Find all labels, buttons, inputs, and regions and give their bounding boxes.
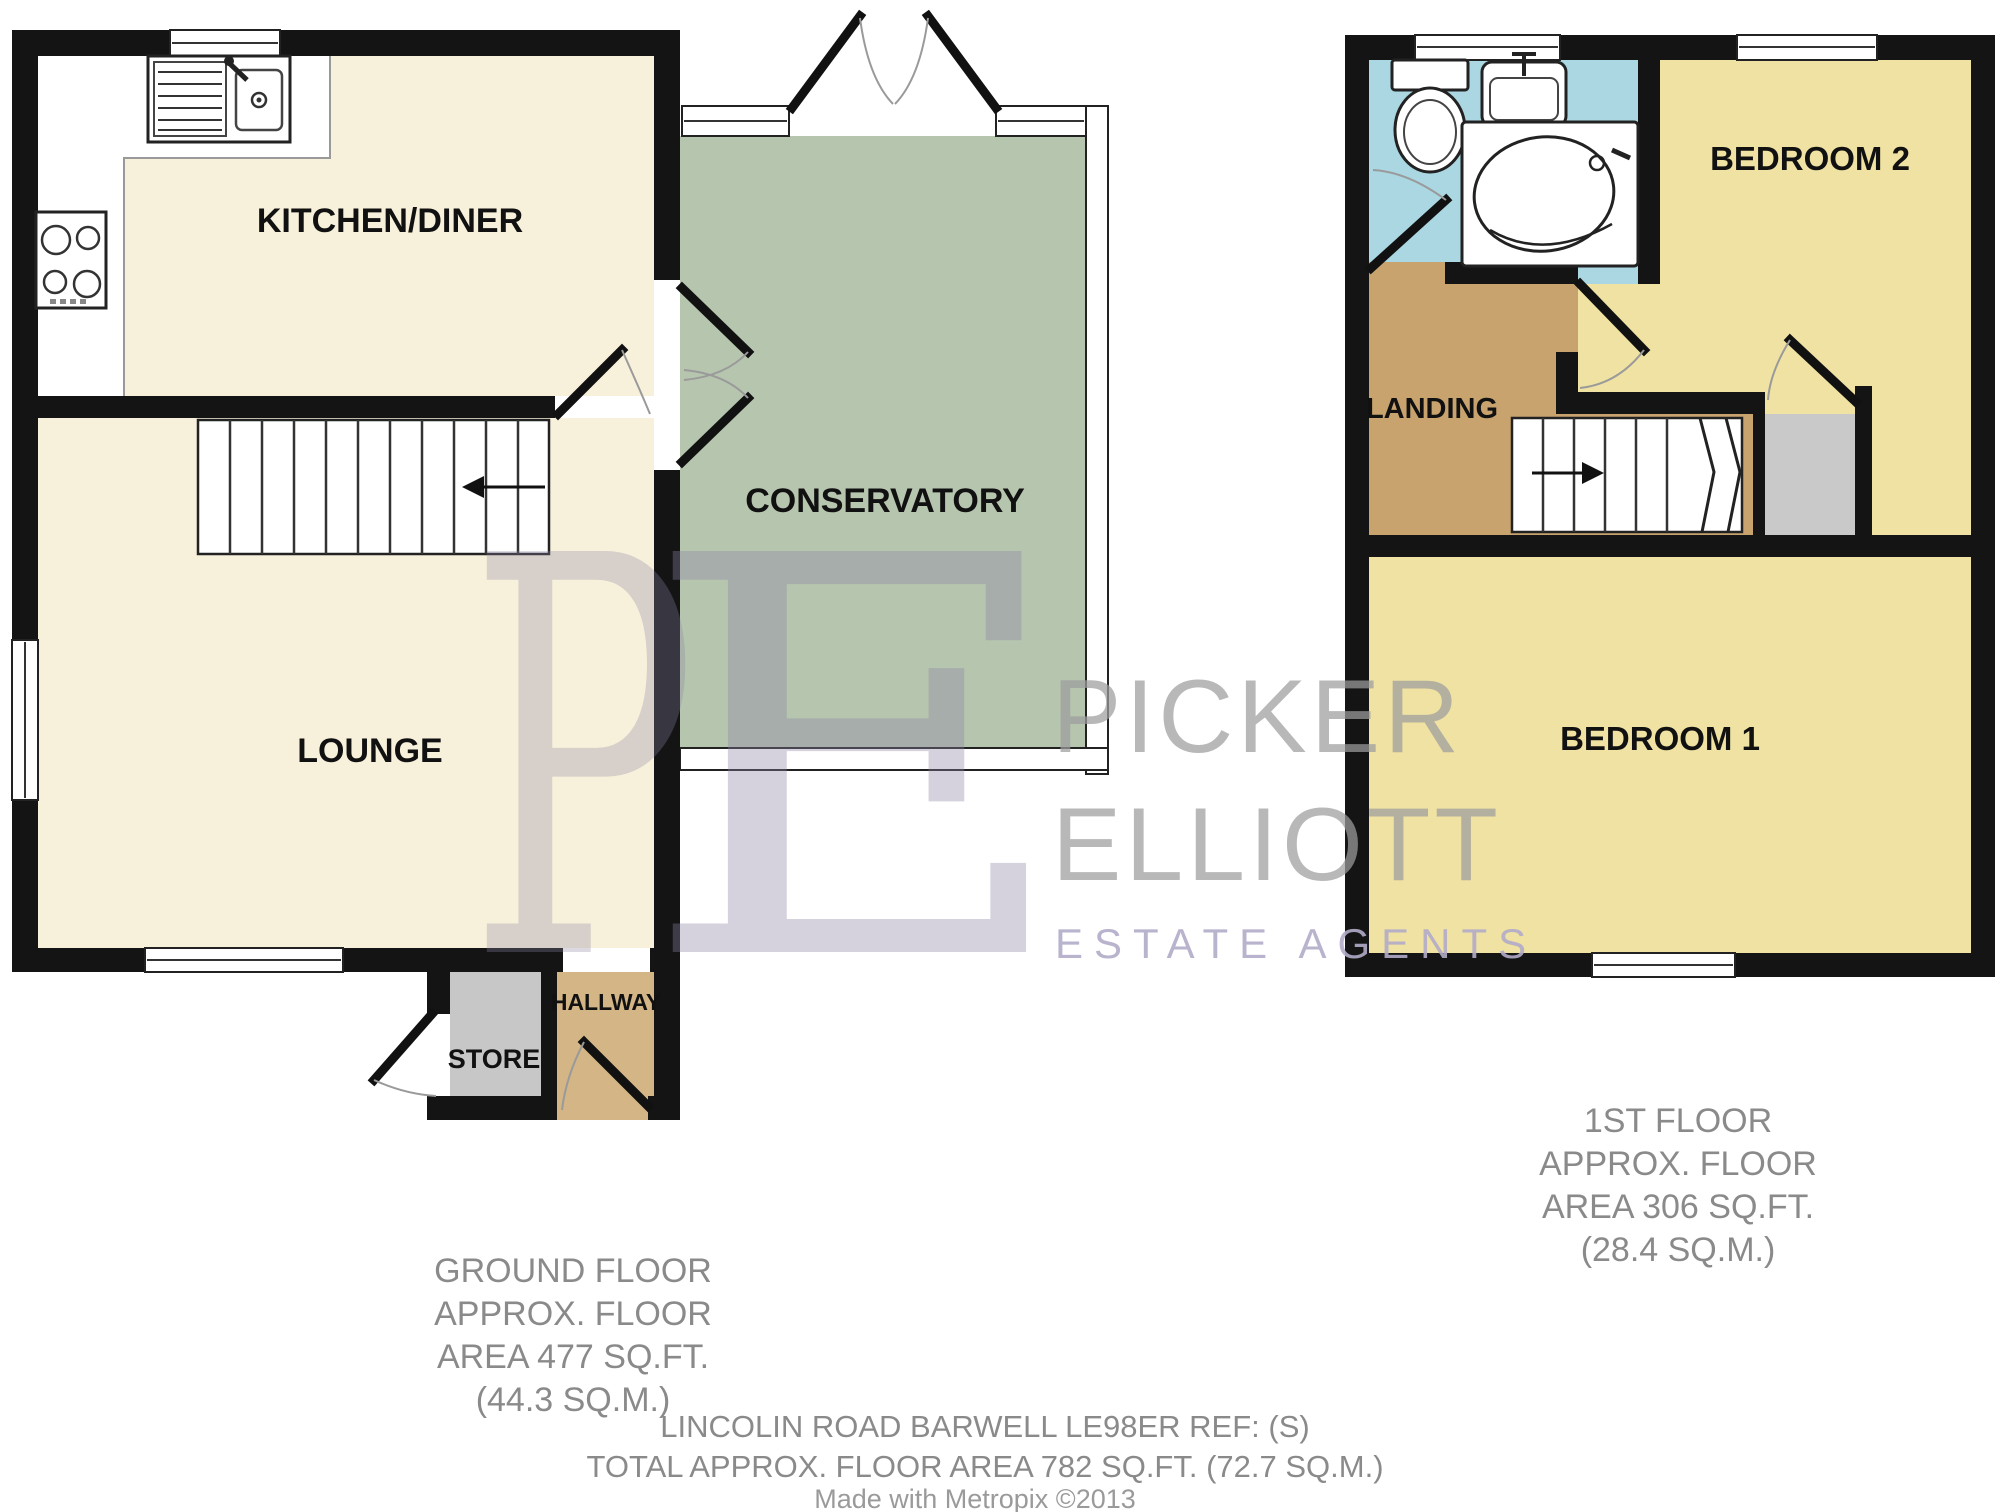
ground-caption-line3: AREA 477 SQ.FT. — [437, 1338, 709, 1376]
room-label-kitchen-diner: KITCHEN/DINER — [257, 202, 523, 240]
basin-icon — [1482, 52, 1566, 126]
bedroom1-window — [1592, 953, 1735, 977]
bathroom-window — [1415, 35, 1560, 60]
room-label-bedroom2: BEDROOM 2 — [1710, 140, 1910, 177]
ground-caption-line2: APPROX. FLOOR — [434, 1295, 712, 1333]
footer: LINCOLIN ROAD BARWELL LE98ER REF: (S) TO… — [586, 1409, 1383, 1512]
room-label-bedroom1: BEDROOM 1 — [1560, 720, 1760, 757]
conservatory-french-doors — [792, 16, 996, 108]
watermark-name-bottom: ELLIOTT — [1052, 787, 1502, 903]
floorplan-page: KITCHEN/DINER LOUNGE CONSERVATORY STORE … — [0, 0, 2000, 1512]
hob-icon — [36, 212, 106, 308]
stairs-cupboard — [1765, 414, 1855, 535]
room-label-landing: LANDING — [1366, 393, 1498, 425]
ground-caption-line4: (44.3 SQ.M.) — [476, 1381, 671, 1419]
bath-icon — [1462, 122, 1638, 266]
store-door — [374, 1014, 436, 1096]
first-caption-line1: 1ST FLOOR — [1584, 1102, 1772, 1140]
watermark-tagline: ESTATE AGENTS — [1055, 920, 1537, 967]
sink-icon — [148, 56, 290, 142]
first-caption-line2: APPROX. FLOOR — [1539, 1145, 1817, 1183]
watermark-monogram-e: E — [640, 442, 1074, 1082]
watermark-name-top: PICKER — [1052, 659, 1463, 775]
first-caption-line3: AREA 306 SQ.FT. — [1542, 1188, 1814, 1226]
toilet-icon — [1392, 60, 1468, 172]
floorplan-drawing: KITCHEN/DINER LOUNGE CONSERVATORY STORE … — [0, 0, 2000, 1512]
lounge-window-bottom — [145, 948, 343, 972]
ground-caption-line1: GROUND FLOOR — [434, 1252, 712, 1290]
bedroom2-window — [1737, 35, 1877, 60]
ground-floor-caption: GROUND FLOOR APPROX. FLOOR AREA 477 SQ.F… — [434, 1252, 712, 1419]
first-caption-line4: (28.4 SQ.M.) — [1581, 1231, 1776, 1269]
footer-total-area: TOTAL APPROX. FLOOR AREA 782 SQ.FT. (72.… — [586, 1449, 1383, 1484]
footer-address: LINCOLIN ROAD BARWELL LE98ER REF: (S) — [660, 1409, 1309, 1444]
first-floor-caption: 1ST FLOOR APPROX. FLOOR AREA 306 SQ.FT. … — [1539, 1102, 1817, 1269]
footer-credit: Made with Metropix ©2013 — [814, 1484, 1136, 1512]
kitchen-window — [170, 30, 280, 56]
first-floor-stairs-icon — [1512, 418, 1742, 532]
lounge-window-left — [12, 640, 38, 800]
room-label-lounge: LOUNGE — [297, 732, 442, 770]
